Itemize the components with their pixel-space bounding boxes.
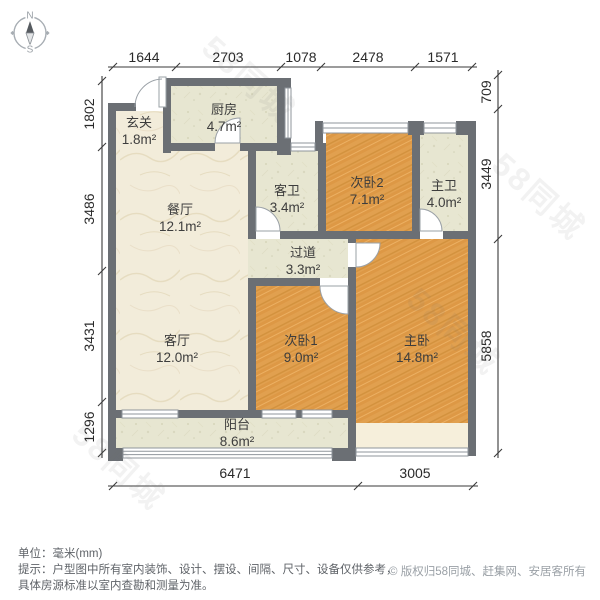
unit-note: 单位：毫米(mm) [18, 546, 398, 562]
dim-left-2: 3486 [81, 193, 97, 224]
dim-right-3: 5858 [478, 330, 494, 361]
room-name: 餐厅 [159, 201, 201, 218]
room-name: 次卧1 [284, 332, 319, 349]
room-area: 4.7m² [207, 118, 242, 135]
dim-top-4: 2478 [352, 49, 383, 65]
dim-left-4: 1296 [81, 411, 97, 442]
room-area: 12.1m² [159, 218, 201, 235]
room-area: 3.3m² [286, 261, 321, 278]
compass-north-label: N [25, 11, 34, 22]
tip-line-2: 具体房源标准以室内查勘和测量为准。 [18, 578, 398, 594]
room-area: 14.8m² [396, 349, 438, 366]
room-label-entry: 玄关 1.8m² [122, 114, 157, 148]
room-label-kitchen: 厨房 4.7m² [207, 101, 242, 135]
dim-left-1: 1802 [81, 98, 97, 129]
room-label-master-bedroom: 主卧 14.8m² [396, 332, 438, 366]
copyright-notice: © 版权归58同城、赶集网、安居客所有 [389, 563, 586, 579]
room-name: 客厅 [156, 332, 198, 349]
dim-right-1: 709 [478, 80, 494, 103]
room-name: 过道 [286, 244, 321, 261]
room-name: 玄关 [122, 114, 157, 131]
dim-right-2: 3449 [478, 158, 494, 189]
room-label-hallway: 过道 3.3m² [286, 244, 321, 278]
dim-bottom-2: 3005 [399, 465, 430, 481]
room-label-guest-bathroom: 客卫 3.4m² [270, 182, 305, 216]
floor-plan-drawing [0, 0, 600, 600]
room-area: 12.0m² [156, 349, 198, 366]
room-label-dining-room: 餐厅 12.1m² [159, 201, 201, 235]
compass-south-label: S [26, 45, 35, 56]
room-area: 8.6m² [220, 433, 255, 450]
room-area: 1.8m² [122, 131, 157, 148]
room-label-master-bathroom: 主卫 4.0m² [427, 177, 462, 211]
room-name: 客卫 [270, 182, 305, 199]
dim-top-1: 1644 [128, 49, 159, 65]
room-area: 3.4m² [270, 199, 305, 216]
dim-top-3: 1078 [285, 49, 316, 65]
floorplan-page: N S 58同城 58同城 58同城 58同城 玄关 1.8m² 厨房 4.7m… [0, 0, 600, 600]
legend-text: 单位：毫米(mm) 提示：户型图中所有室内装饰、设计、摆设、间隔、尺寸、设备仅供… [18, 546, 398, 594]
room-name: 主卫 [427, 177, 462, 194]
room-area: 9.0m² [284, 349, 319, 366]
room-name: 阳台 [220, 416, 255, 433]
room-area: 7.1m² [350, 191, 385, 208]
tip-line-1: 提示：户型图中所有室内装饰、设计、摆设、间隔、尺寸、设备仅供参考， [18, 562, 398, 578]
room-label-bedroom-2: 次卧2 7.1m² [350, 174, 385, 208]
room-label-living-room: 客厅 12.0m² [156, 332, 198, 366]
dim-bottom-1: 6471 [219, 465, 250, 481]
dim-left-3: 3431 [81, 320, 97, 351]
dim-top-5: 1571 [427, 49, 458, 65]
room-label-balcony: 阳台 8.6m² [220, 416, 255, 450]
room-area: 4.0m² [427, 194, 462, 211]
room-name: 主卧 [396, 332, 438, 349]
dim-top-2: 2703 [212, 49, 243, 65]
room-name: 次卧2 [350, 174, 385, 191]
room-name: 厨房 [207, 101, 242, 118]
room-label-bedroom-1: 次卧1 9.0m² [284, 332, 319, 366]
